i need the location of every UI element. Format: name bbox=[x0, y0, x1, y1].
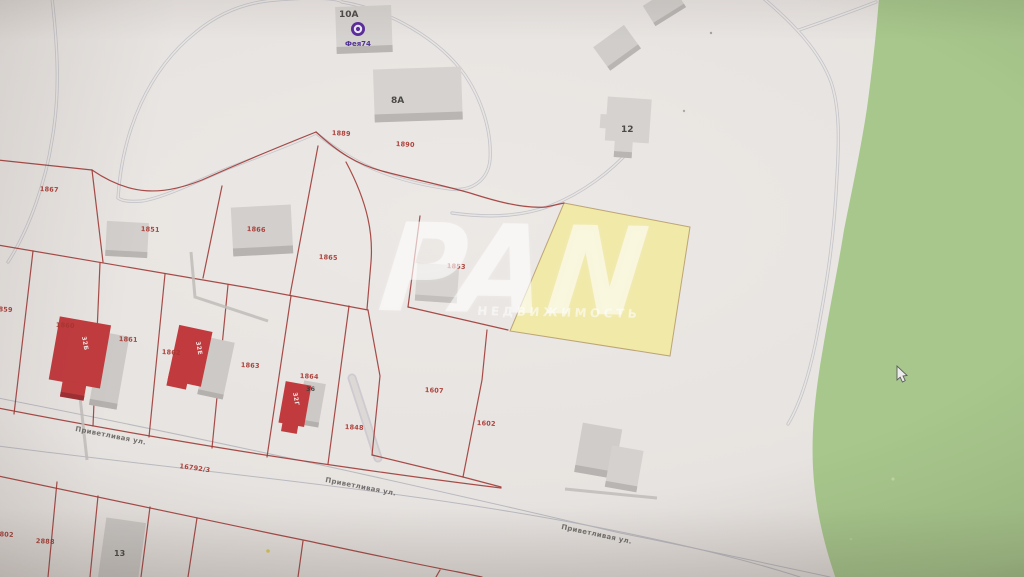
map-canvas[interactable]: 1889189018671851186618651853186018611862… bbox=[0, 0, 1024, 577]
mouse-cursor bbox=[0, 0, 1024, 577]
